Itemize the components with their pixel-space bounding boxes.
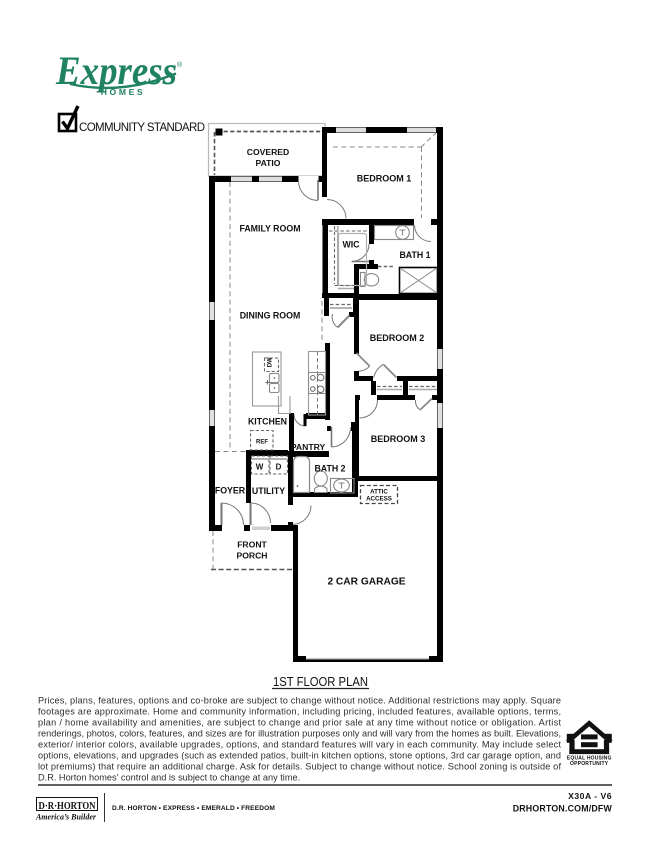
svg-text:PATIO: PATIO <box>256 158 281 168</box>
svg-text:FAMILY ROOM: FAMILY ROOM <box>239 224 300 234</box>
svg-text:DRHORTON.COM/DFW: DRHORTON.COM/DFW <box>513 804 613 814</box>
svg-text:PORCH: PORCH <box>236 551 267 561</box>
svg-text:WIC: WIC <box>342 240 360 250</box>
svg-text:D·R·HORTON: D·R·HORTON <box>39 800 96 812</box>
svg-text:D: D <box>276 463 282 472</box>
svg-text:DINING ROOM: DINING ROOM <box>240 311 301 321</box>
svg-text:OPPORTUNITY: OPPORTUNITY <box>570 761 609 767</box>
svg-text:options, elevations, and upgra: options, elevations, and upgrades (such … <box>38 751 561 761</box>
svg-text:FRONT: FRONT <box>237 540 267 550</box>
svg-text:footages are approximate. Home: footages are approximate. Home and commu… <box>38 707 561 717</box>
svg-text:BATH 2: BATH 2 <box>314 464 345 474</box>
svg-text:lot premiums) that require an: lot premiums) that require an additional… <box>38 762 561 772</box>
svg-text:America’s Builder: America’s Builder <box>35 813 97 822</box>
svg-text:plan / home availability and a: plan / home availability and amenities, … <box>38 718 561 728</box>
svg-text:exterior/ interior colors, ava: exterior/ interior colors, available upg… <box>38 740 561 750</box>
svg-text:renderings, photos, colors, fe: renderings, photos, colors, features, an… <box>38 729 561 739</box>
svg-text:FOYER: FOYER <box>215 486 246 496</box>
svg-text:PANTRY: PANTRY <box>291 442 326 452</box>
svg-text:®: ® <box>177 61 183 69</box>
svg-text:HOMES: HOMES <box>101 87 146 97</box>
svg-text:X30A - V6: X30A - V6 <box>568 791 612 801</box>
svg-text:KITCHEN: KITCHEN <box>248 417 287 427</box>
svg-text:Prices, plans, features, optio: Prices, plans, features, options and co-… <box>38 696 561 706</box>
svg-text:2 CAR GARAGE: 2 CAR GARAGE <box>327 577 405 588</box>
svg-text:W: W <box>256 463 264 472</box>
svg-text:D.R. HORTON • EXPRESS • EMERAL: D.R. HORTON • EXPRESS • EMERALD • FREEDO… <box>112 805 275 812</box>
svg-text:REF: REF <box>256 440 268 446</box>
svg-text:COVERED: COVERED <box>247 147 290 157</box>
svg-text:1ST FLOOR PLAN: 1ST FLOOR PLAN <box>273 675 368 689</box>
svg-text:UTILITY: UTILITY <box>252 486 285 496</box>
svg-text:BATH 1: BATH 1 <box>399 250 430 260</box>
svg-text:D.R. Horton homes’ control and: D.R. Horton homes’ control and is subjec… <box>38 773 300 783</box>
svg-text:ATTIC: ATTIC <box>370 489 388 496</box>
svg-text:BEDROOM 3: BEDROOM 3 <box>371 434 426 444</box>
svg-text:BEDROOM 2: BEDROOM 2 <box>370 333 425 343</box>
svg-text:DW: DW <box>268 357 274 367</box>
svg-text:ACCESS: ACCESS <box>366 496 392 503</box>
svg-text:COMMUNITY STANDARD: COMMUNITY STANDARD <box>79 122 205 134</box>
svg-text:BEDROOM 1: BEDROOM 1 <box>357 174 412 184</box>
